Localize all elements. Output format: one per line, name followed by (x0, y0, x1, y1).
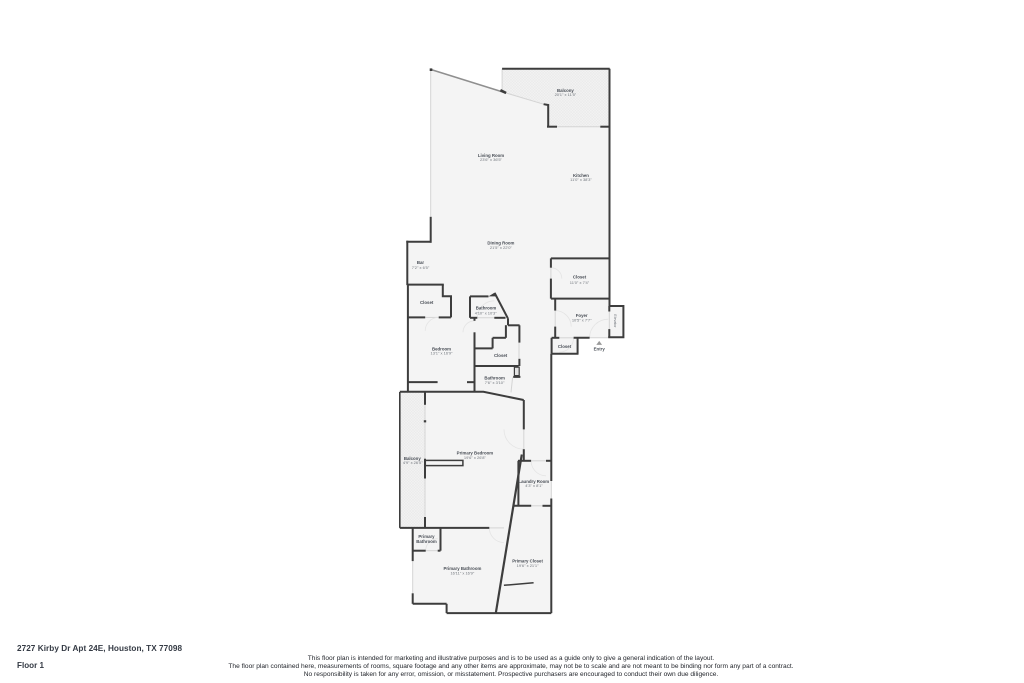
svg-text:Bathroom: Bathroom (416, 539, 437, 544)
svg-text:7'6" x 3'10": 7'6" x 3'10" (485, 380, 505, 385)
svg-text:Elevator: Elevator (613, 314, 617, 328)
svg-text:11'0" x 7'4": 11'0" x 7'4" (570, 280, 590, 285)
svg-text:Closet: Closet (573, 275, 587, 280)
svg-text:16'11" x 16'9": 16'11" x 16'9" (450, 570, 474, 575)
svg-text:Entry: Entry (594, 347, 606, 352)
svg-text:19'6" x 26'8": 19'6" x 26'8" (464, 455, 487, 460)
svg-text:13'1" x 16'9": 13'1" x 16'9" (431, 350, 454, 355)
svg-text:10'5" x 7'7": 10'5" x 7'7" (572, 318, 592, 323)
svg-text:21'5" x 22'0": 21'5" x 22'0" (490, 245, 513, 250)
svg-text:4'10" x 10'3": 4'10" x 10'3" (475, 310, 498, 315)
svg-text:Closet: Closet (558, 344, 572, 349)
svg-text:Closet: Closet (494, 353, 508, 358)
svg-text:4'3" x 8'1": 4'3" x 8'1" (525, 483, 543, 488)
svg-text:20'1" x 11'5": 20'1" x 11'5" (555, 92, 577, 97)
svg-text:19'6" x 21'1": 19'6" x 21'1" (517, 563, 540, 568)
svg-text:4'9" x 26'5": 4'9" x 26'5" (403, 460, 423, 465)
svg-text:11'0" x 38'3": 11'0" x 38'3" (570, 177, 592, 182)
svg-text:23'6" x 36'5": 23'6" x 36'5" (480, 157, 503, 162)
svg-text:Closet: Closet (420, 300, 434, 305)
svg-text:7'2" x 6'5": 7'2" x 6'5" (412, 265, 430, 270)
